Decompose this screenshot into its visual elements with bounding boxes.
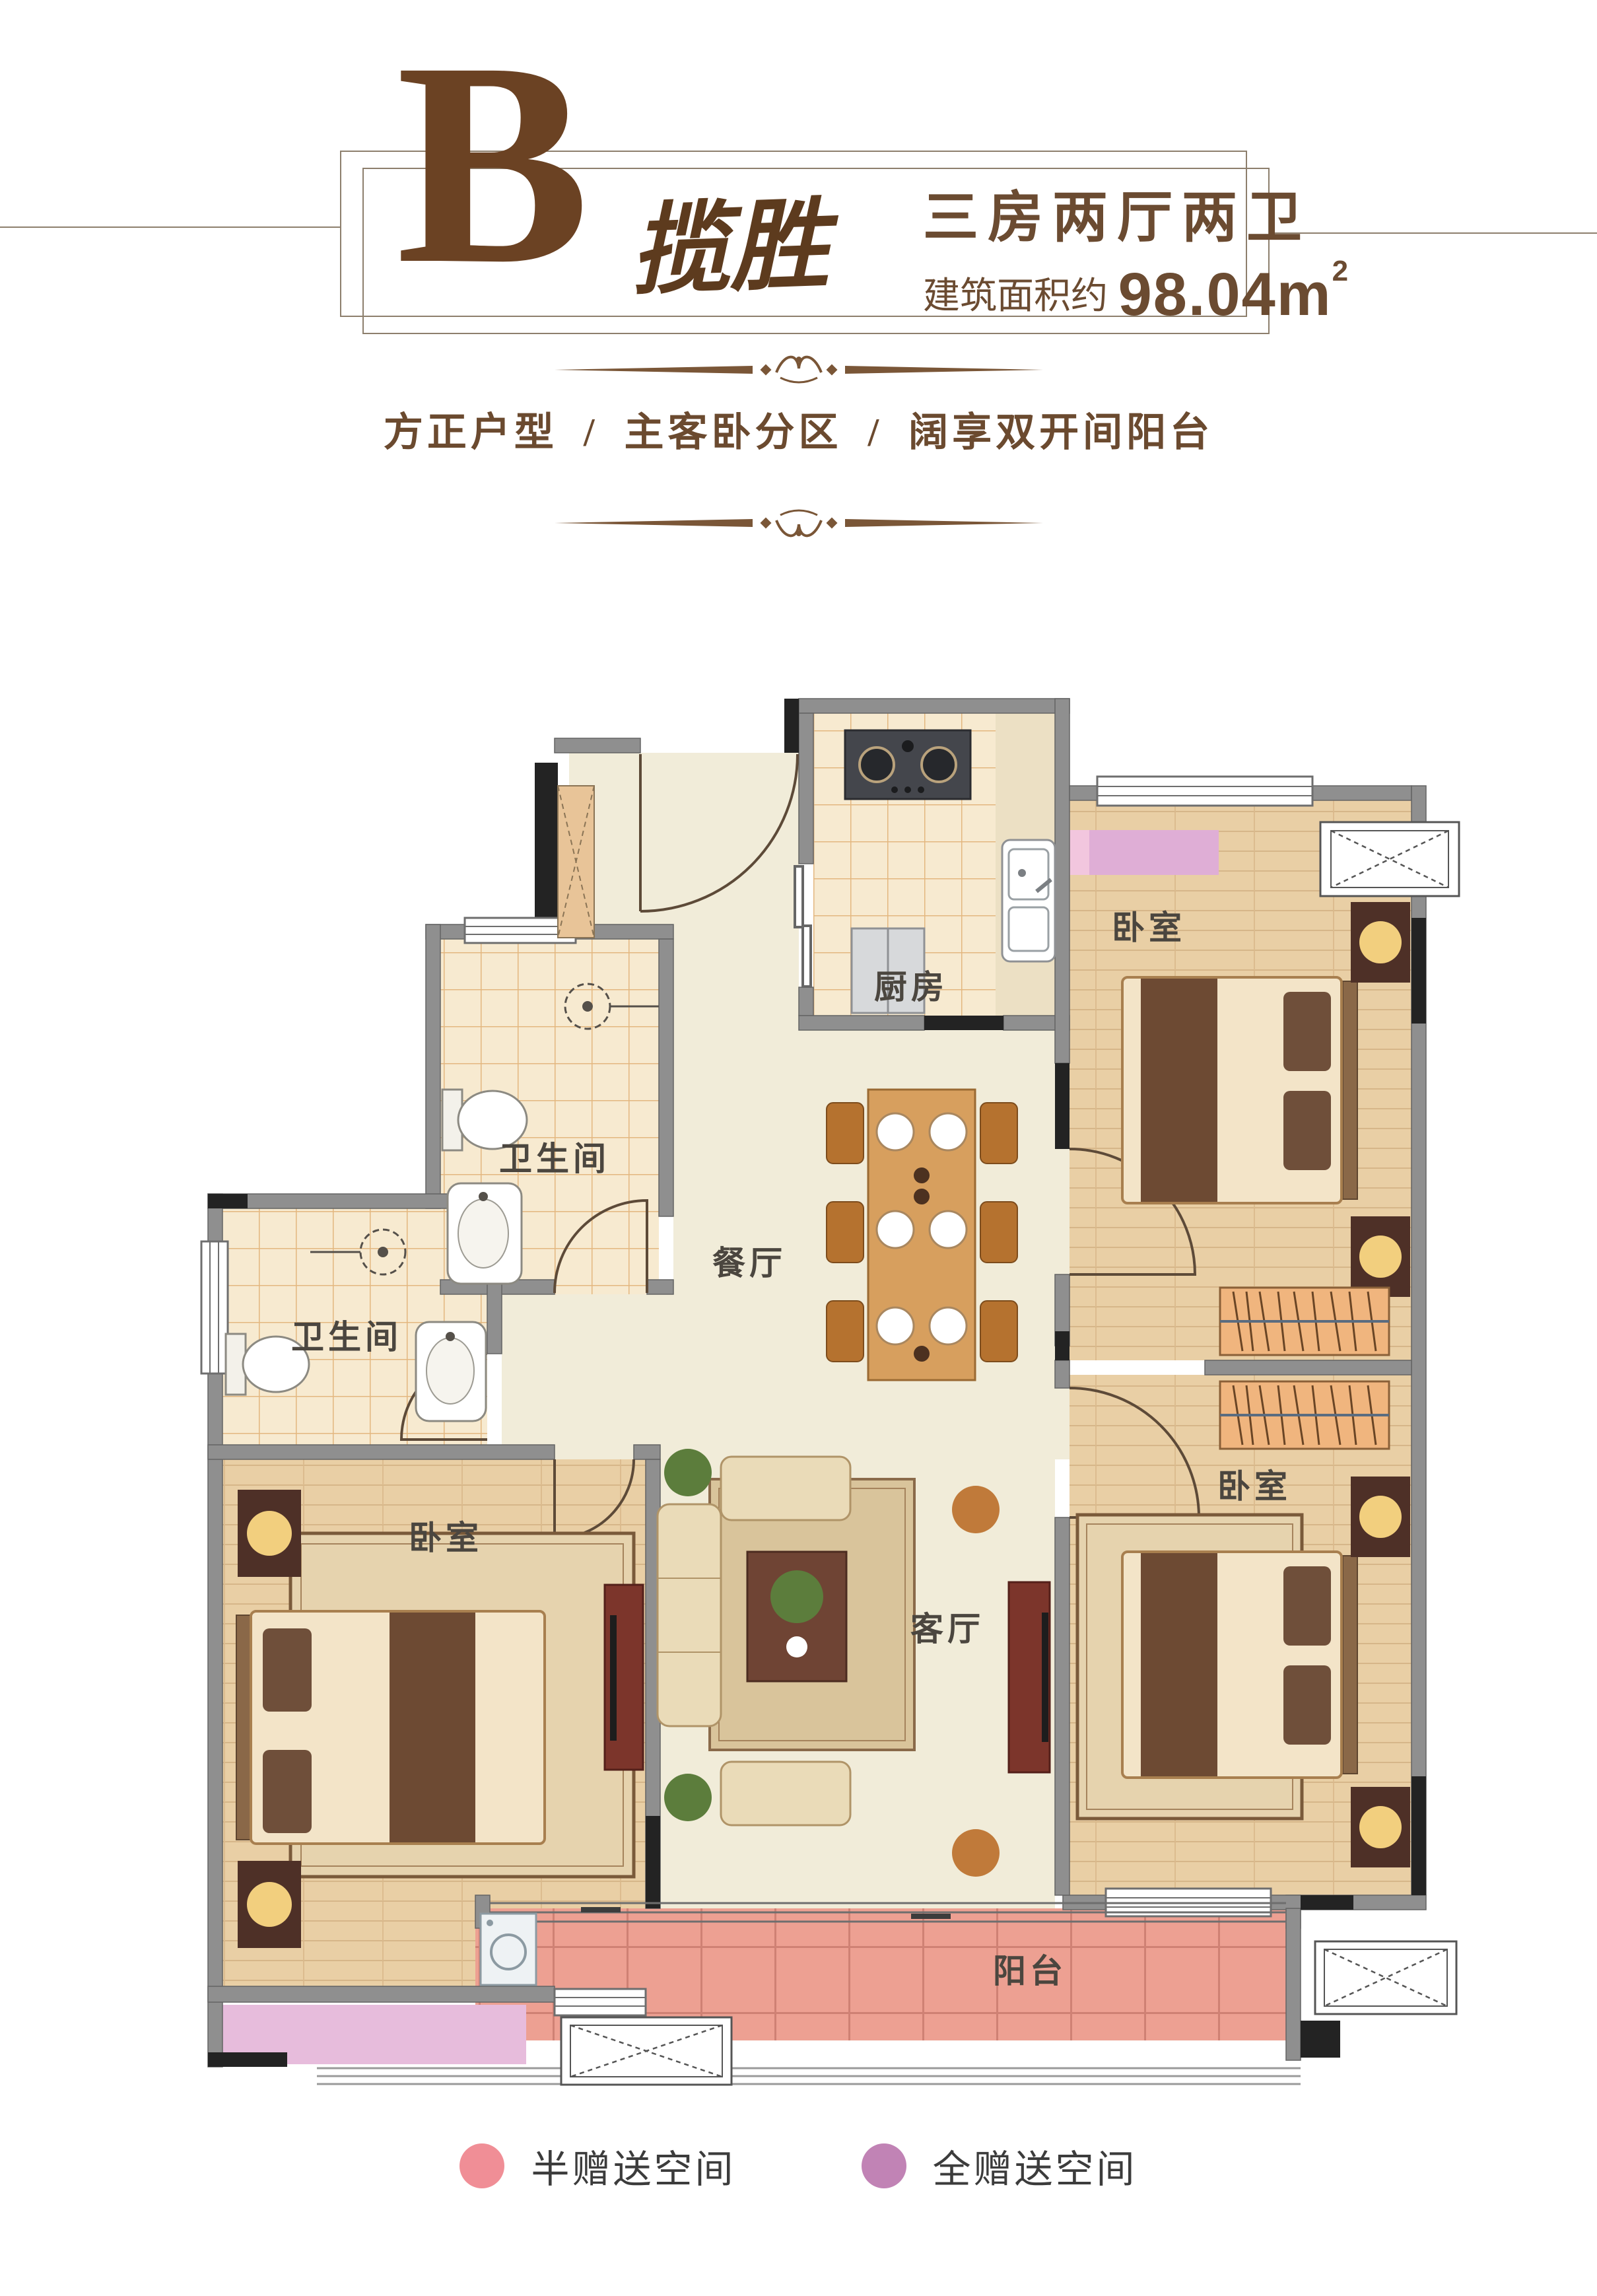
nightstand-lamp	[1351, 902, 1410, 983]
entry-closet	[558, 786, 594, 938]
ac-platform	[1315, 1941, 1456, 2014]
plant-icon	[664, 1449, 712, 1496]
legend: 半赠送空间 全赠送空间	[0, 2138, 1597, 2194]
dining-table	[827, 1090, 1017, 1380]
kitchen-sink-icon	[1002, 840, 1055, 961]
coffee-table	[747, 1552, 846, 1681]
unit-letter: B	[396, 18, 590, 309]
legend-item-half-gift: 半赠送空间	[459, 2138, 735, 2194]
area-line: 建筑面积约 98.04m2	[923, 255, 1348, 330]
window	[555, 1989, 646, 2015]
balcony-rail	[317, 2068, 1301, 2084]
nightstand-lamp	[238, 1490, 301, 1577]
room-label-living: 客厅	[910, 1611, 984, 1648]
nightstand-lamp	[238, 1861, 301, 1948]
area-value: 98.04m	[1118, 261, 1332, 328]
room-label-bedroom-master: 卧室	[409, 1519, 483, 1556]
sink-icon	[416, 1322, 486, 1421]
nightstand-lamp	[1351, 1477, 1410, 1557]
wardrobe	[1220, 1381, 1389, 1449]
room-label-bedroom-br: 卧室	[1217, 1468, 1291, 1505]
balcony-items	[481, 1914, 536, 1985]
window	[201, 1241, 228, 1374]
page: B 揽胜 三房两厅两卫 建筑面积约 98.04m2 方正户型 / 主客卧分区 /…	[0, 0, 1597, 2296]
room-label-bathroom-upper: 卫生间	[499, 1140, 610, 1177]
unit-name: 揽胜	[629, 191, 831, 307]
ac-platform	[561, 2017, 731, 2085]
tagline: 方正户型 / 主客卧分区 / 阔享双开间阳台	[0, 400, 1597, 458]
tv-console	[605, 1585, 643, 1770]
ac-platform	[1320, 822, 1459, 896]
room-label-bathroom-lower: 卫生间	[291, 1319, 402, 1356]
legend-label: 半赠送空间	[531, 2138, 735, 2194]
wardrobe	[1220, 1288, 1389, 1355]
bed	[236, 1611, 545, 1844]
plant-icon	[664, 1774, 712, 1821]
full-gift-dot-icon	[862, 2143, 906, 2188]
stove-icon	[845, 730, 970, 799]
tv-console	[1009, 1582, 1050, 1772]
area-prefix: 建筑面积约	[923, 275, 1108, 316]
bed	[1122, 977, 1357, 1203]
full-gift-zone	[1089, 830, 1219, 875]
room-label-bedroom-tr: 卧室	[1112, 909, 1186, 946]
nightstand-lamp	[1351, 1787, 1410, 1867]
page-title: 三房两厅两卫	[923, 173, 1311, 253]
window	[1097, 777, 1312, 806]
room-label-dining: 餐厅	[712, 1245, 786, 1282]
half-gift-dot-icon	[459, 2143, 504, 2188]
floorplan: 厨房 卧室 卫生间 卫生间 餐厅 客厅 卧室 卧室 阳台	[185, 693, 1492, 2093]
legend-label: 全赠送空间	[933, 2138, 1138, 2194]
washing-machine-icon	[481, 1914, 536, 1985]
legend-item-full-gift: 全赠送空间	[862, 2138, 1138, 2194]
header-rule-right	[1270, 232, 1597, 234]
divider-ornament-icon	[535, 497, 1063, 549]
plant-icon	[952, 1486, 1000, 1533]
hallway-floor	[502, 1288, 675, 1459]
divider-ornament-icon	[535, 343, 1063, 396]
bed	[1122, 1552, 1357, 1778]
area-superscript: 2	[1332, 255, 1348, 287]
room-label-kitchen: 厨房	[874, 969, 948, 1006]
room-label-balcony: 阳台	[993, 1953, 1067, 1990]
sink-icon	[448, 1183, 522, 1284]
plant-icon	[952, 1829, 1000, 1877]
nightstand-lamp	[1351, 1216, 1410, 1297]
header-rule-left	[0, 226, 340, 228]
